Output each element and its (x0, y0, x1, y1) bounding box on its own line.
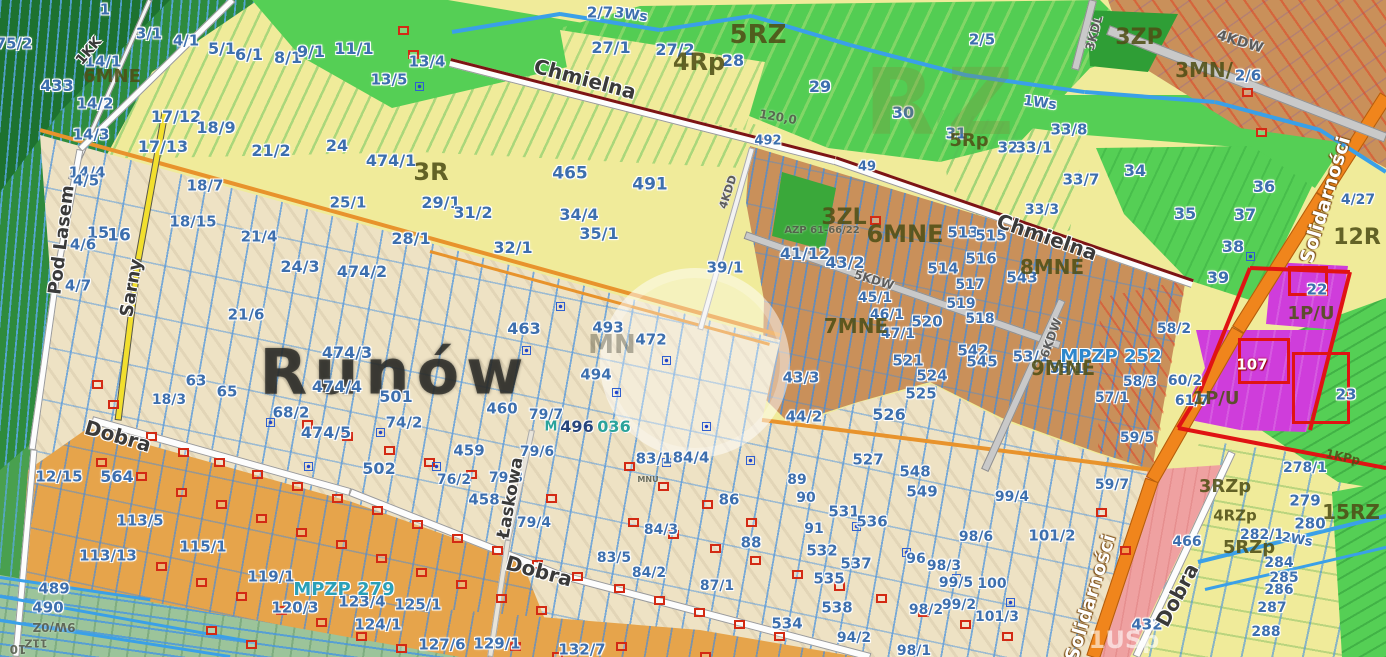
street-name-label: Solidarności (1298, 134, 1355, 265)
parcel-number-label: 526 (872, 407, 905, 423)
parcel-number-label: 524 (916, 369, 947, 384)
annotation-label: 11Z (24, 638, 47, 649)
parcel-number-label: 44/2 (786, 410, 823, 425)
parcel-number-label: 459 (453, 444, 484, 459)
parcel-number-label: 8/1 (274, 50, 302, 66)
parcel-number-label: 515 (975, 229, 1006, 244)
parcel-number-label: 489 (38, 582, 69, 597)
parcel-number-label: 45/1 (858, 291, 892, 305)
parcel-number-label: 536 (856, 515, 887, 530)
parcel-number-label: 21/4 (241, 230, 278, 245)
parcel-number-label: 79/6 (520, 445, 554, 459)
parcel-number-label: 113/5 (116, 514, 163, 529)
parcel-number-label: 22 (1307, 283, 1328, 298)
parcel-number-label: 516 (965, 252, 996, 267)
parcel-number-label: 535 (813, 572, 844, 587)
parcel-number-label: 43/3 (783, 371, 820, 386)
parcel-number-label: 520 (911, 315, 942, 330)
parcel-number-label: 6/1 (235, 47, 263, 63)
parcel-number-label: 32/1 (493, 240, 532, 256)
parcel-number-label: 286 (1264, 583, 1293, 597)
parcel-number-label: 57/1 (1095, 391, 1129, 405)
parcel-number-label: 2/6 (1235, 69, 1261, 84)
parcel-number-label: 496 (560, 419, 593, 435)
zone-code-label: 4RZp (1213, 509, 1257, 524)
zone-code-label: 5RZ (730, 22, 787, 48)
parcel-number-label: 24/3 (280, 259, 319, 275)
parcel-number-label: 89 (787, 473, 806, 487)
parcel-number-label: 23 (1336, 388, 1357, 403)
annotation-label: 9W/0Z (32, 621, 75, 633)
parcel-number-label: 58/3 (1123, 375, 1157, 389)
parcel-number-label: 47/1 (881, 327, 915, 341)
parcel-number-label: 514 (927, 262, 958, 277)
parcel-number-label: 29 (809, 79, 831, 95)
street-name-label: Solidarności (1063, 532, 1120, 657)
parcel-number-label: 474/1 (366, 153, 416, 169)
parcel-number-label: 4/1 (173, 34, 199, 49)
zone-code-label: 1USp (1089, 628, 1160, 652)
road-code-label: 4KDD (717, 174, 738, 210)
parcel-number-label: 4/27 (1341, 193, 1375, 207)
parcel-number-label: 432 (1131, 618, 1162, 633)
zone-code-label: 15RZ (1322, 502, 1380, 522)
parcel-number-label: 74/2 (386, 416, 423, 431)
parcel-number-label: 120/3 (271, 601, 318, 616)
parcel-number-label: 466 (1172, 535, 1201, 549)
parcel-number-label: 33/1 (1016, 141, 1053, 156)
parcel-number-label: 282/1 (1240, 528, 1284, 542)
parcel-number-label: 33/8 (1051, 123, 1088, 138)
parcel-number-label: 107 (1236, 358, 1267, 373)
annotation-label: AZP 61-66/22 (784, 226, 859, 236)
parcel-number-label: 17/12 (151, 109, 201, 125)
parcel-number-label: 84/3 (644, 523, 678, 537)
zone-code-label: 3ZL (821, 207, 866, 229)
parcel-number-label: 1 (100, 3, 110, 18)
parcel-number-label: 63 (186, 374, 207, 389)
parcel-number-label: 79/3 (489, 471, 523, 485)
zone-code-label: 7MNE (824, 316, 888, 336)
parcel-number-label: 549 (906, 485, 937, 500)
parcel-number-label: 83/1 (636, 452, 673, 467)
parcel-number-label: 36 (1253, 179, 1275, 195)
parcel-number-label: 34/4 (559, 207, 598, 223)
parcel-number-label: 34 (1124, 163, 1146, 179)
parcel-number-label: 83/5 (597, 551, 631, 565)
parcel-number-label: 4/6 (70, 238, 96, 253)
parcel-number-label: 91 (804, 522, 823, 536)
parcel-number-label: 31/2 (453, 205, 492, 221)
parcel-number-label: 527 (852, 453, 883, 468)
road-code-label: 6KDW (1038, 317, 1063, 359)
parcel-number-label: 521 (892, 354, 923, 369)
parcel-number-label: 18/9 (196, 120, 235, 136)
street-name-label: Chmielna (994, 210, 1100, 263)
parcel-number-label: 32 (998, 141, 1019, 156)
zone-code-label: 3RZp (1199, 478, 1251, 496)
parcel-number-label: 501 (379, 389, 412, 405)
parcel-number-label: 127/6 (418, 638, 465, 653)
parcel-number-label: 279 (1289, 494, 1320, 509)
parcel-number-label: 036 (597, 419, 630, 435)
parcel-number-label: 119/1 (247, 570, 294, 585)
street-name-label: Pod Lasem (46, 184, 77, 295)
parcel-number-label: 12/15 (35, 470, 82, 485)
parcel-number-label: 132/7 (558, 643, 605, 657)
parcel-number-label: 474/4 (312, 379, 362, 395)
parcel-number-label: 538 (821, 601, 852, 616)
annotation-label: MNU (637, 476, 658, 484)
parcel-number-label: 493 (592, 321, 623, 336)
parcel-number-label: 29/1 (421, 195, 460, 211)
parcel-number-label: 513 (947, 226, 978, 241)
parcel-number-label: 49 (858, 161, 876, 174)
parcel-number-label: 2/7 (587, 6, 613, 21)
parcel-number-label: 15 (87, 225, 109, 241)
parcel-number-label: 543 (1006, 271, 1037, 286)
map-canvas[interactable]: Runów 175/243314/114/214/314/43/14/15/16… (0, 0, 1386, 657)
parcel-number-label: 13/5 (371, 73, 408, 88)
parcel-number-label: 460 (486, 402, 517, 417)
parcel-number-label: 75/2 (0, 37, 32, 52)
parcel-number-label: 84/4 (673, 451, 710, 466)
parcel-number-label: 564 (100, 469, 133, 485)
parcel-number-label: 88 (741, 536, 762, 551)
zone-code-label: 8MNE (1020, 257, 1084, 277)
parcel-number-label: 84/2 (632, 566, 666, 580)
parcel-number-label: 491 (632, 177, 668, 194)
parcel-number-label: 90 (796, 491, 815, 505)
parcel-number-label: 65 (217, 385, 238, 400)
parcel-number-label: 86 (719, 493, 740, 508)
zone-code-label: 9MNE (1031, 358, 1095, 378)
stream-name-label: 2Ws (1281, 531, 1314, 549)
parcel-number-label: 33/3 (1025, 203, 1059, 217)
parcel-number-label: 284 (1264, 556, 1293, 570)
watermark-text: RZ (864, 57, 1026, 149)
parcel-number-label: 79/4 (517, 516, 551, 530)
parcel-number-label: 28 (722, 53, 744, 69)
plan-reference-label: MPZP 252 (1060, 348, 1161, 366)
parcel-number-label: 39 (1207, 270, 1229, 286)
parcel-number-label: 4/7 (65, 279, 91, 294)
annotation-label: 10 (10, 643, 27, 655)
parcel-number-label: 465 (552, 166, 588, 183)
parcel-number-label: 18/15 (169, 215, 216, 230)
zone-code-label: 1P/U (1288, 305, 1335, 323)
stream-name-label: 3Ws (613, 6, 648, 25)
parcel-number-label: 288 (1251, 625, 1280, 639)
parcel-number-label: 287 (1257, 601, 1286, 615)
parcel-number-label: 517 (955, 278, 984, 292)
parcel-number-label: 30 (892, 105, 914, 121)
parcel-number-label: 55/1 (1050, 362, 1084, 376)
parcel-number-label: 16 (107, 228, 131, 245)
road-code-label: 5KDW (853, 268, 896, 291)
annotation-label: 120,0 (758, 108, 797, 126)
zone-code-label: 3MN/ (1175, 60, 1233, 80)
parcel-number-label: 2/5 (969, 33, 995, 48)
parcel-number-label: 280 (1294, 517, 1325, 532)
parcel-number-label: 518 (965, 312, 994, 326)
zone-code-label: 12R (1333, 227, 1381, 249)
parcel-number-label: 98/3 (927, 559, 961, 573)
parcel-number-label: 123/4 (338, 595, 385, 610)
street-name-label: Łaskowa (495, 456, 526, 540)
parcel-number-label: 58/2 (1157, 322, 1191, 336)
parcel-number-label: 100 (977, 577, 1006, 591)
parcel-number-label: 474/2 (337, 264, 387, 280)
parcel-number-label: 53/1 (1013, 350, 1050, 365)
street-name-label: Chmielna (532, 56, 638, 102)
parcel-number-label: 35/1 (579, 226, 618, 242)
zone-code-label: 5RZp (1223, 539, 1275, 557)
zone-code-label: 6MNE (83, 68, 141, 86)
labels-layer: 175/243314/114/214/314/43/14/15/16/18/19… (0, 0, 1386, 657)
parcel-number-label: 537 (840, 557, 871, 572)
parcel-number-label: 125/1 (394, 598, 441, 613)
road-code-label: 3KDL (1084, 14, 1105, 51)
parcel-number-label: 21/6 (228, 308, 265, 323)
parcel-number-label: 17/13 (138, 139, 188, 155)
parcel-number-label: 27/1 (591, 40, 630, 56)
stream-name-label: 1Ws (1022, 94, 1057, 113)
parcel-number-label: 79/7 (529, 408, 563, 422)
parcel-number-label: 494 (580, 368, 611, 383)
zone-code-label: 1P/U (1193, 390, 1240, 408)
zone-code-label: 1KPp (1325, 447, 1362, 466)
zone-code-label: 6MNE (866, 222, 943, 246)
watermark-text: MN (588, 332, 636, 358)
zone-code-label: 5Rp (949, 132, 988, 150)
parcel-number-label: 474/5 (301, 425, 351, 441)
parcel-number-label: 4/5 (73, 174, 99, 189)
parcel-number-label: 525 (905, 387, 936, 402)
parcel-number-label: 519 (946, 297, 975, 311)
parcel-number-label: 99/4 (995, 490, 1029, 504)
zone-code-label: 3ZP (1115, 27, 1162, 49)
zone-code-label: 3R (413, 160, 448, 184)
parcel-number-label: 474/3 (322, 345, 372, 361)
parcel-number-label: 99/2 (942, 598, 976, 612)
parcel-number-label: 548 (899, 465, 930, 480)
parcel-number-label: 278/1 (1283, 461, 1327, 475)
parcel-number-label: 41/12 (780, 246, 830, 262)
parcel-number-label: 33/7 (1063, 173, 1100, 188)
parcel-number-label: 96 (906, 552, 925, 566)
parcel-number-label: 11/1 (334, 41, 373, 57)
parcel-number-label: 37 (1234, 207, 1256, 223)
street-name-label: Dobra (504, 553, 575, 590)
parcel-number-label: 98/2 (909, 603, 943, 617)
parcel-number-label: 98/1 (897, 644, 931, 657)
parcel-number-label: 14/3 (73, 128, 110, 143)
parcel-number-label: 101/2 (1028, 529, 1075, 544)
parcel-number-label: 113/13 (79, 549, 137, 564)
parcel-number-label: 28/1 (391, 231, 430, 247)
parcel-number-label: 115/1 (179, 540, 226, 555)
parcel-number-label: 25/1 (330, 196, 367, 211)
parcel-number-label: 87/1 (700, 579, 734, 593)
parcel-number-label: 129/1 (473, 637, 520, 652)
parcel-number-label: 39/1 (707, 261, 744, 276)
parcel-number-label: 101/3 (975, 610, 1019, 624)
parcel-number-label: 18/3 (152, 393, 186, 407)
parcel-number-label: 24 (326, 138, 348, 154)
parcel-number-label: 31 (946, 127, 967, 142)
street-name-label: Sarny (118, 258, 146, 319)
parcel-number-label: 43/2 (825, 255, 864, 271)
parcel-number-label: 60/2 (1168, 374, 1202, 388)
parcel-number-label: 532 (806, 544, 837, 559)
parcel-number-label: 458 (468, 493, 499, 508)
street-name-label: 1KK (74, 34, 105, 67)
parcel-number-label: 14/1 (85, 55, 122, 70)
parcel-number-label: 14/4 (69, 166, 106, 181)
parcel-number-label: 490 (32, 601, 63, 616)
parcel-number-label: 502 (362, 461, 395, 477)
parcel-number-label: 534 (771, 617, 802, 632)
parcel-number-label: M (545, 421, 558, 434)
parcel-number-label: 5/1 (208, 41, 236, 57)
parcel-number-label: 46/1 (870, 308, 904, 322)
parcel-number-label: 98/6 (959, 530, 993, 544)
parcel-number-label: 472 (635, 333, 666, 348)
parcel-number-label: 463 (507, 321, 540, 337)
parcel-number-label: 27/2 (655, 42, 694, 58)
parcel-number-label: 21/2 (251, 143, 290, 159)
parcel-number-label: 68/2 (273, 406, 310, 421)
parcel-number-label: 35 (1174, 206, 1196, 222)
zone-code-label: 4Rp (673, 50, 725, 74)
parcel-number-label: 3/1 (136, 27, 162, 42)
parcel-number-label: 59/7 (1095, 478, 1129, 492)
parcel-number-label: 13/4 (409, 55, 446, 70)
parcel-number-label: 542 (957, 344, 988, 359)
parcel-number-label: 61/7 (1175, 394, 1209, 408)
plan-reference-label: MPZP 279 (293, 581, 394, 599)
parcel-number-label: 9/1 (297, 44, 325, 60)
parcel-number-label: 124/1 (354, 618, 401, 633)
parcel-number-label: 76/2 (437, 473, 471, 487)
parcel-number-label: 531 (828, 505, 859, 520)
parcel-number-label: 14/2 (77, 97, 114, 112)
parcel-number-label: 59/5 (1120, 431, 1154, 445)
parcel-number-label: 492 (754, 135, 781, 148)
street-name-label: Dobra (1152, 560, 1202, 629)
parcel-number-label: 545 (966, 355, 997, 370)
parcel-number-label: 38 (1222, 239, 1244, 255)
parcel-number-label: 18/7 (187, 179, 224, 194)
parcel-number-label: 285 (1269, 571, 1298, 585)
road-code-label: 4KDW (1215, 28, 1265, 55)
street-name-label: Dobra (83, 417, 154, 455)
parcel-number-label: 94/2 (837, 631, 871, 645)
parcel-number-label: 99/5 (939, 576, 973, 590)
parcel-number-label: 433 (40, 78, 73, 94)
